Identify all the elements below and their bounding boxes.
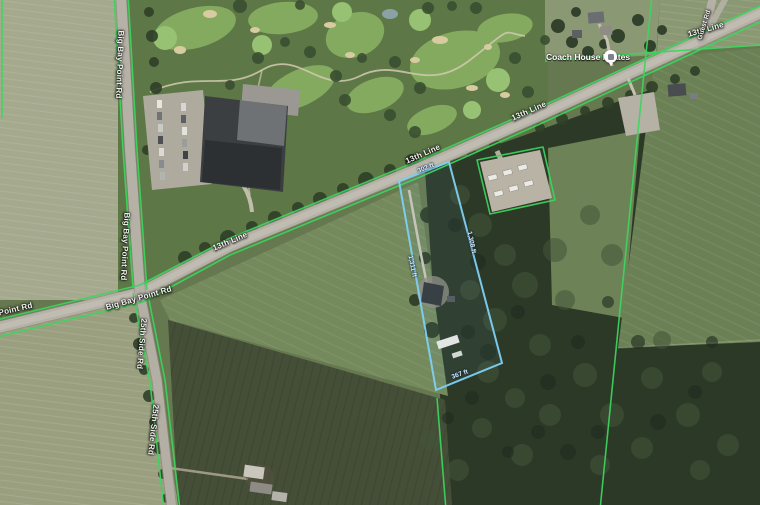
satellite-map[interactable]: 13th Line 13th Line 13th Line 13th Line … <box>0 0 760 505</box>
poi-glyph <box>608 54 614 60</box>
pond <box>382 9 398 19</box>
poi-pin-icon[interactable] <box>604 50 617 63</box>
satellite-imagery <box>0 0 760 505</box>
